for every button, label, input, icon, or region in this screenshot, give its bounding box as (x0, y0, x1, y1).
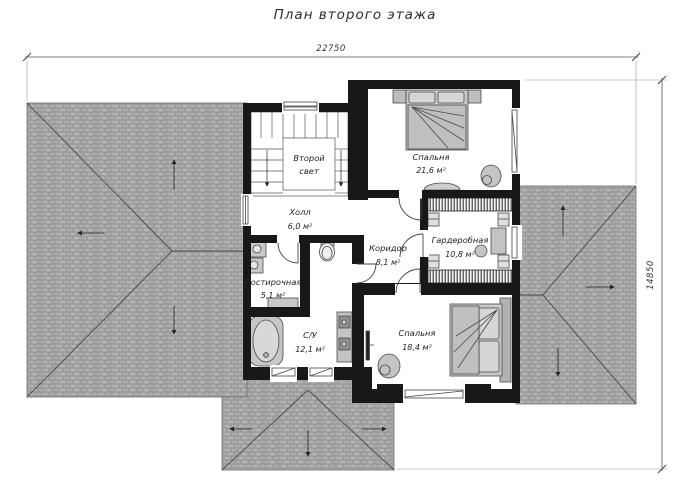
bed-bedroom2 (450, 298, 511, 382)
page-title: План второго этажа (274, 7, 437, 23)
armchair-bedroom2 (378, 354, 400, 378)
label-wardrobe-name: Гардеробная (432, 235, 489, 245)
window-bathroom-2 (308, 365, 334, 382)
floor-plan-page: Второй свет Спальня 21,6 м² Холл 6,0 м² … (0, 0, 692, 502)
dimension-top-label: 22750 (316, 44, 346, 54)
label-hall-name: Холл (288, 207, 311, 217)
window-bedroom2-bottom (403, 387, 465, 405)
dresser (491, 228, 506, 254)
window-hall-left (241, 194, 253, 226)
label-hall-area: 6,0 м² (288, 222, 313, 231)
label-bedroom1-name: Спальня (413, 152, 450, 162)
sink (320, 241, 335, 261)
label-bedroom2-name: Спальня (399, 328, 436, 338)
label-corridor-area: 8,1 м² (376, 258, 401, 267)
bathtub (249, 316, 283, 366)
left-roof (27, 103, 247, 397)
dimension-right-label: 14850 (646, 260, 656, 290)
label-laundry-name: Постирочная (245, 277, 302, 287)
label-bedroom1-area: 21,6 м² (416, 166, 446, 175)
label-wardrobe-area: 10,8 м² (445, 250, 475, 259)
label-laundry-area: 5,1 м² (261, 291, 286, 300)
right-roof (516, 186, 636, 404)
bed-bedroom1 (393, 90, 481, 150)
vanity (337, 312, 352, 362)
label-corridor-name: Коридор (369, 243, 407, 253)
label-bathroom-name: С/У (303, 330, 318, 340)
window-bathroom-1 (270, 365, 297, 382)
pouf (475, 245, 487, 257)
label-bedroom2-area: 18,4 м² (402, 343, 432, 352)
window-wardrobe-right (510, 225, 522, 260)
label-second-light: Второй (293, 153, 325, 163)
window-stairwell-top (282, 100, 319, 114)
label-bathroom-area: 12,1 м² (295, 345, 325, 354)
label-second-light: свет (299, 166, 320, 176)
floor-plan-canvas: Второй свет Спальня 21,6 м² Холл 6,0 м² … (0, 0, 692, 502)
window-bedroom1-right (510, 108, 522, 174)
